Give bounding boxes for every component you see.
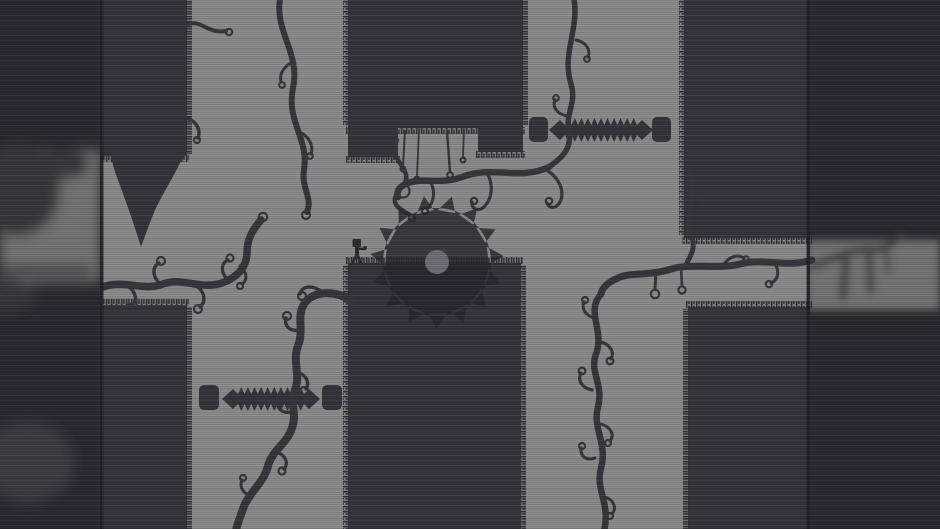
pillar-top-middle-foot-r xyxy=(476,120,525,158)
focus-divider-right xyxy=(807,0,811,529)
focus-divider-left xyxy=(100,0,104,529)
pillar-bottom-left xyxy=(101,299,192,529)
character-gun xyxy=(363,246,367,249)
edge-fringe xyxy=(186,307,192,529)
edge-fringe xyxy=(522,0,528,126)
vine-notch-string xyxy=(463,129,464,157)
grass-fringe xyxy=(101,299,189,306)
grass-fringe xyxy=(686,301,812,308)
blurred-level-right xyxy=(806,235,940,310)
grass-fringe xyxy=(682,237,812,244)
trap-anchor-block xyxy=(199,385,219,410)
pillar-top-middle xyxy=(343,0,528,134)
saw-hub xyxy=(425,250,449,274)
pillar-top-right xyxy=(679,0,812,244)
edge-fringe xyxy=(683,309,689,529)
grass-fringe xyxy=(346,156,400,163)
trap-anchor-block xyxy=(652,117,671,142)
edge-fringe xyxy=(343,0,349,126)
game-viewport[interactable] xyxy=(0,0,940,529)
pillar-top-left xyxy=(101,0,192,162)
edge-fringe xyxy=(520,265,526,529)
trap-anchor-block xyxy=(322,385,342,410)
level-scene xyxy=(0,0,940,529)
pillar-bottom-right xyxy=(683,301,812,529)
grass-fringe xyxy=(476,151,525,158)
pillar-top-middle-foot-l xyxy=(346,120,400,163)
edge-fringe xyxy=(343,265,349,529)
edge-fringe xyxy=(679,0,685,236)
trap-anchor-block xyxy=(529,117,548,142)
character-head xyxy=(353,239,362,247)
